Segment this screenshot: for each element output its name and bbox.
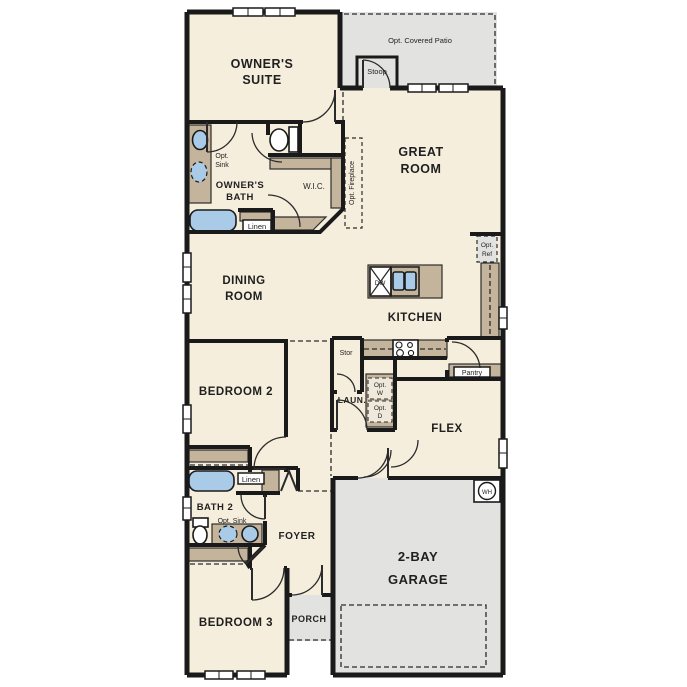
label-porch: PORCH [291, 614, 326, 624]
label-dishwasher: DW [375, 280, 387, 287]
label-garage-2: GARAGE [388, 572, 448, 587]
label-opt-sink-owners-1: Opt. [215, 153, 228, 160]
floor-plan-svg: OWNER'S SUITE Opt. Covered Patio Stoop G… [0, 0, 687, 687]
label-bath-2: BATH 2 [197, 502, 234, 513]
opt-ref-box [477, 236, 497, 262]
label-linen-hall: Linen [242, 475, 260, 484]
island-sink-left [393, 272, 404, 290]
owners-toilet-tank [289, 127, 298, 152]
label-opt-sink-bath2: Opt. Sink [218, 518, 247, 525]
label-wic: W.I.C. [303, 182, 325, 191]
window [183, 285, 191, 313]
owners-sink [193, 131, 208, 150]
owners-optional-sink [191, 162, 207, 182]
window [439, 84, 468, 92]
label-owners-bath-2: BATH [226, 192, 254, 203]
label-opt-ref-2: Ref [482, 251, 492, 258]
owners-toilet-bowl [270, 129, 288, 151]
window [183, 253, 191, 282]
bath2-toilet-bowl [193, 526, 207, 544]
label-bedroom-2: BEDROOM 2 [199, 386, 273, 398]
label-laundry: LAUN. [338, 395, 366, 405]
window [233, 8, 263, 16]
patio-outside-strip [497, 10, 504, 85]
label-linen-owners: Linen [248, 222, 266, 231]
window [205, 671, 233, 679]
bath2-bathtub [189, 471, 234, 491]
label-stoop: Stoop [367, 67, 387, 76]
label-water-heater: WH [482, 490, 492, 496]
window [237, 671, 265, 679]
label-great-room-2: ROOM [401, 162, 442, 176]
label-opt-covered-patio: Opt. Covered Patio [388, 36, 452, 45]
window [183, 405, 191, 433]
label-foyer: FOYER [279, 531, 316, 542]
wic-shelf-right [331, 158, 342, 208]
label-owners-suite-1: OWNER'S [231, 57, 294, 71]
bedroom2-closet-shelf [189, 450, 248, 462]
label-opt-washer-1: Opt. [374, 382, 386, 389]
label-stor: Stor [340, 350, 354, 357]
window [499, 307, 507, 329]
label-opt-ref-1: Opt. [481, 242, 493, 249]
owners-bathtub [190, 210, 236, 231]
label-opt-fireplace: Opt. Fireplace [349, 161, 356, 205]
label-opt-washer-2: W [377, 390, 384, 397]
bath2-sink [242, 526, 258, 542]
label-flex: FLEX [431, 423, 462, 435]
island-sink-right [405, 272, 416, 290]
label-bedroom-3: BEDROOM 3 [199, 617, 273, 629]
label-dining-room-2: ROOM [225, 291, 263, 303]
floor-plan: OWNER'S SUITE Opt. Covered Patio Stoop G… [0, 0, 687, 687]
label-dining-room-1: DINING [222, 275, 265, 287]
label-owners-bath-1: OWNER'S [216, 180, 265, 191]
label-pantry: Pantry [462, 370, 483, 377]
label-owners-suite-2: SUITE [242, 73, 281, 87]
label-opt-dryer-2: D [378, 413, 383, 420]
label-kitchen: KITCHEN [388, 312, 443, 324]
window [499, 439, 507, 468]
label-opt-dryer-1: Opt. [374, 405, 386, 412]
window [408, 84, 436, 92]
label-great-room-1: GREAT [398, 145, 443, 159]
window [183, 497, 191, 520]
bath2-optional-sink [219, 526, 237, 542]
label-opt-sink-owners-2: Sink [215, 162, 229, 169]
window [265, 8, 295, 16]
label-garage-1: 2-BAY [398, 549, 438, 564]
